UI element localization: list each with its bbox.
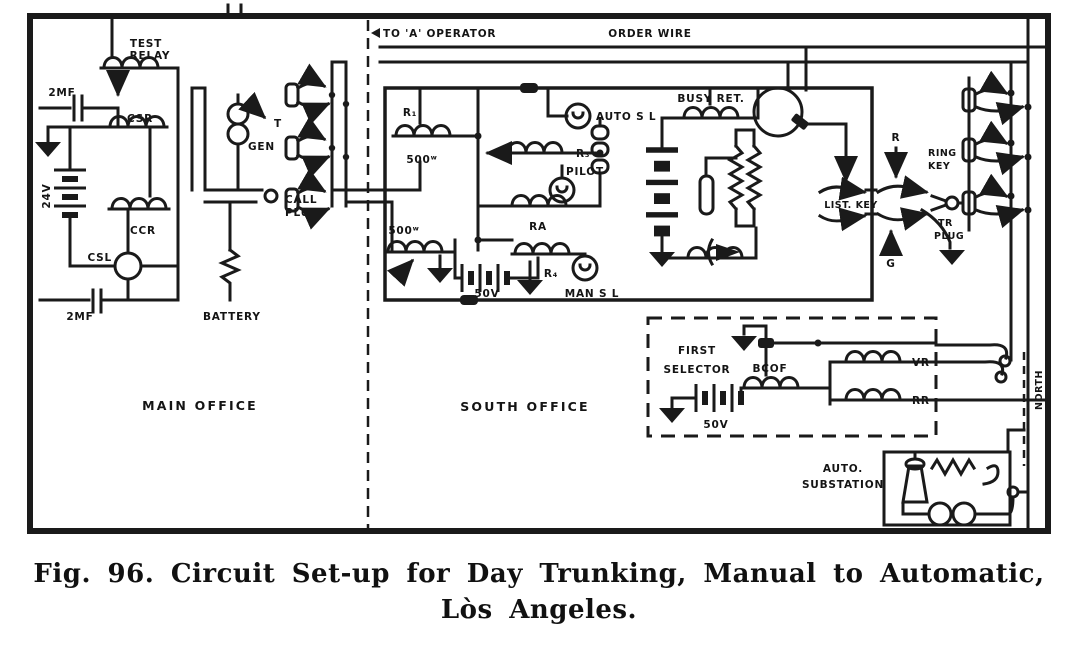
main-office-jacks [286,62,385,212]
plug-symbol [791,113,810,131]
busy-ret-relay-coil [681,108,741,119]
label-pilot: PILOT [566,166,604,178]
order-wire-drop [788,47,806,90]
label-r2-ohms: 500ʷ [388,225,419,237]
circuit-diagram: TEST RELAY 2MF CSR 24V CCR CSL 2MF GEN T [0,0,1078,647]
ground-symbol [659,408,685,423]
trunk-jack-2 [963,139,1032,161]
ground-symbol [35,142,61,157]
label-man-sl: MAN S L [565,288,620,300]
label-first: FIRST [678,345,716,357]
junction-dot [475,237,482,244]
label-ccr: CCR [130,225,156,237]
label-g-conductor: G [886,258,895,270]
label-auto-sl: AUTO S L [596,111,656,123]
wire [192,88,205,190]
label-r-conductor: R [892,132,901,144]
figure-caption-line2: Lòs Angeles. [441,595,637,625]
label-to-a-operator: TO 'A' OPERATOR [383,28,496,40]
ring-key-spring-bottom [878,214,926,220]
wire [922,210,950,248]
battery-stack [646,150,678,231]
capacitor-2mf-bottom [40,279,178,312]
hook-wire-1 [936,345,1007,358]
wire [548,88,567,116]
label-50v-selector: 50V [703,419,728,431]
capacitor-2mf-top [40,96,118,120]
battery-50v-selector [696,384,741,412]
label-key: KEY [928,161,950,172]
left-arrow [371,28,380,38]
switch-hook [984,466,998,484]
label-test-relay-1: TEST [130,38,162,50]
label-north: NORTH [1034,370,1045,410]
gen-coil-lower [228,124,248,144]
label-bcof: BCOF [752,363,787,375]
ring-key-spring-top [878,186,926,192]
label-auto: AUTO. [823,463,863,475]
south-office-section: R₁ 500ʷ R₃ AUTO S L PILOT RA 500 [385,83,878,414]
r1-relay-coil [393,126,453,137]
label-24v: 24V [41,183,53,208]
figure-caption-line1: Fig. 96. Circuit Set-up for Day Trunking… [33,559,1044,589]
repeating-coil [730,130,760,226]
trunk-jack-1 [963,89,1032,111]
wire [141,68,178,300]
label-substation: SUBSTATION [802,479,884,491]
wire [48,127,107,142]
label-r4: R₄ [544,268,558,280]
r4-relay-coil [512,244,572,255]
battery-resistor [222,202,238,300]
dial-circle-2 [953,503,975,525]
label-csl: CSL [87,252,112,264]
label-r1: R₁ [403,107,417,119]
label-gen: GEN [248,141,275,153]
ground-symbol [517,280,543,295]
telephone-receiver [903,459,929,514]
label-battery: BATTERY [203,311,261,323]
call-plug-tip [265,190,277,202]
wire [766,343,936,375]
label-selector: SELECTOR [664,364,731,376]
resistor-zigzag [932,460,974,474]
r3-relay-coil [505,143,565,154]
receiver-symbol [709,240,741,264]
dial-circle-1 [929,503,951,525]
plug-contact-top [520,83,538,93]
label-order-wire: ORDER WIRE [608,28,691,40]
label-r1-ohms: 500ʷ [406,154,437,166]
label-main-office: MAIN OFFICE [142,398,258,413]
first-selector-section: FIRST SELECTOR BCOF 50V VR RR [648,318,1048,436]
battery-24v [54,170,86,215]
ring-key-section: R RING KEY G TR PLUG [878,132,965,270]
wire [830,362,843,400]
r2-relay-coil [385,242,445,253]
label-south-office: SOUTH OFFICE [460,399,590,414]
csl-lamp [115,253,141,279]
wire [385,162,420,252]
label-ra: RA [529,221,547,233]
auto-sl-lamp [566,104,590,128]
wire [806,124,846,160]
junction-dot [815,340,822,347]
ccr-relay-coil [109,199,169,210]
label-vr: VR [912,357,930,369]
trunk-jack-3 [963,192,1032,214]
order-wire-section: TO 'A' OPERATOR ORDER WIRE [371,28,1048,90]
list-key-spring-bottom [820,216,864,221]
retard-coil [700,176,713,214]
label-list-key: LIST. KEY [824,200,878,211]
ground-symbol [731,336,757,351]
label-cap-2mf-bottom: 2MF [66,311,93,323]
bcof-relay-coil [741,378,801,389]
main-office-section: TEST RELAY 2MF CSR 24V CCR CSL 2MF GEN T [35,16,385,413]
call-plug-prongs [205,190,262,202]
man-sl-lamp [573,256,597,280]
hook-tip-2 [996,372,1006,382]
label-t: T [274,118,282,130]
vr-relay-coil [843,352,903,363]
ground-symbol [939,250,965,265]
order-wire-pair [380,47,1048,62]
rr-relay-coil [843,390,903,401]
gen-coil-upper [228,104,248,124]
plug-tip-circle [946,197,958,209]
label-call: CALL [285,194,317,206]
list-key-spring-top [820,187,864,192]
scanned-page: TEST RELAY 2MF CSR 24V CCR CSL 2MF GEN T [0,0,1078,647]
label-ring: RING [928,148,957,159]
wire [672,398,694,408]
wire [915,430,1024,514]
label-50v-south: 50V [474,288,499,300]
label-cap-2mf-top: 2MF [48,87,75,99]
ground-symbol [427,268,453,283]
operator-set-circle [754,88,802,136]
junction-dot [475,133,482,140]
auto-substation-section: AUTO. SUBSTATION [802,430,1028,525]
wire [420,88,478,250]
arrow-ne [400,261,412,274]
